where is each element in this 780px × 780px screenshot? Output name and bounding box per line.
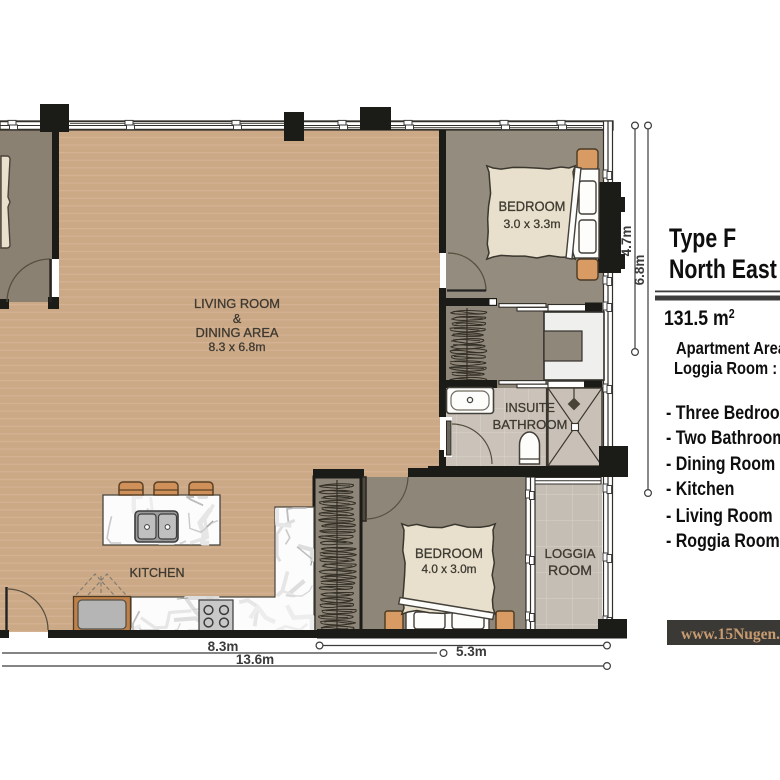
svg-text:- Dining Room: - Dining Room — [666, 453, 775, 475]
svg-text:3.0 x 3.3m: 3.0 x 3.3m — [504, 217, 561, 231]
svg-text:13.6m: 13.6m — [236, 652, 274, 667]
svg-text:KITCHEN: KITCHEN — [130, 566, 185, 580]
svg-text:BATHROOM: BATHROOM — [493, 417, 568, 432]
svg-text:&: & — [233, 312, 242, 326]
svg-text:LOGGIA: LOGGIA — [545, 546, 596, 561]
svg-text:8.3 x 6.8m: 8.3 x 6.8m — [209, 340, 266, 354]
svg-text:LIVING ROOM: LIVING ROOM — [194, 296, 280, 311]
svg-text:5.3m: 5.3m — [456, 644, 487, 659]
svg-text:- Kitchen: - Kitchen — [666, 478, 734, 500]
svg-text:BEDROOM: BEDROOM — [499, 199, 566, 214]
svg-text:- Two Bathrooms: - Two Bathrooms — [666, 427, 780, 449]
svg-text:8.3m: 8.3m — [208, 639, 239, 654]
svg-text:- Roggia Room: - Roggia Room — [666, 530, 780, 552]
svg-text:4.7m: 4.7m — [619, 226, 634, 257]
svg-text:4.0 x 3.0m: 4.0 x 3.0m — [422, 562, 477, 576]
svg-text:Type F: Type F — [669, 224, 736, 254]
svg-text:BEDROOM: BEDROOM — [415, 546, 483, 561]
svg-text:ROOM: ROOM — [548, 562, 592, 578]
svg-text:- Living Room: - Living Room — [666, 505, 773, 527]
svg-text:6.8m: 6.8m — [632, 255, 647, 286]
svg-text:North East Corner: North East Corner — [669, 255, 780, 285]
svg-text:www.15Nugen.com: www.15Nugen.com — [681, 626, 780, 643]
svg-text:Apartment Area : 123.5 m2: Apartment Area : 123.5 m2 — [676, 339, 780, 359]
svg-text:131.5 m2: 131.5 m2 — [664, 306, 735, 330]
svg-text:DINING AREA: DINING AREA — [196, 325, 279, 340]
svg-text:- Three Bedrooms: - Three Bedrooms — [666, 402, 780, 424]
svg-text:Loggia Room : 8.0 m2: Loggia Room : 8.0 m2 — [674, 359, 780, 379]
svg-text:INSUITE: INSUITE — [505, 401, 555, 415]
